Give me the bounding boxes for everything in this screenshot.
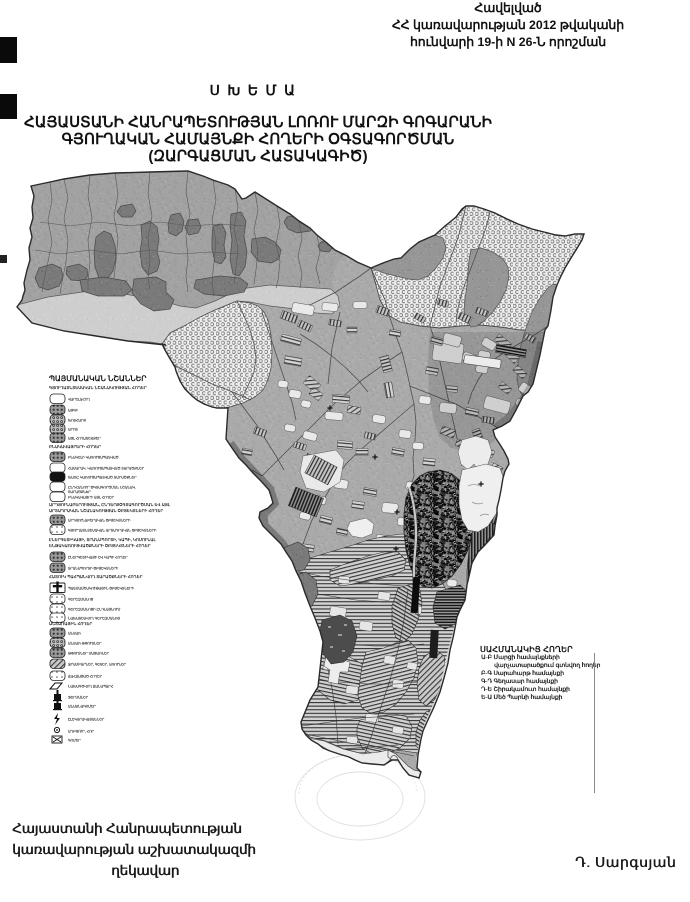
svg-text:ԳԵՐԵԶՄԱՆՈՑԻ ԸՆԴԼԱՅՆՈՒՄ: ԳԵՐԵԶՄԱՆՈՑԻ ԸՆԴԼԱՅՆՈՒՄ: [68, 608, 121, 612]
svg-text:ԷԼԵԿՏՐԱԿԱՅԱՆՆԵՐ: ԷԼԵԿՏՐԱԿԱՅԱՆՆԵՐ: [68, 718, 105, 722]
svg-text:ԱՐՈՏ: ԱՐՈՏ: [68, 428, 78, 432]
svg-text:ԷՆԵՐԳԵՏԻԿԱՅԻ ԵՎ ԿԱՊԻ ՀՈՂԵՐ: ԷՆԵՐԳԵՏԻԿԱՅԻ ԵՎ ԿԱՊԻ ՀՈՂԵՐ: [68, 556, 128, 560]
svg-text:ԱՐԴՅՈՒՆԱԲԵՐԱԿԱՆ ՕԲՅԵԿՏՆԵՐԻ: ԱՐԴՅՈՒՆԱԲԵՐԱԿԱՆ ՕԲՅԵԿՏՆԵՐԻ: [68, 519, 131, 523]
svg-text:ԱՐՏԱԴՐԱԿԱՆ ՆՇԱՆԱԿՈՒԹՅԱՆ ՕԲՅԵԿՏ: ԱՐՏԱԴՐԱԿԱՆ ՆՇԱՆԱԿՈՒԹՅԱՆ ՕԲՅԵԿՏՆԵՐԻ ՀՈՂԵՐ: [49, 508, 163, 513]
svg-text:ԲՆԱԿԱՎԱՅՐԵՐԻ ՀՈՂԵՐ: ԲՆԱԿԱՎԱՅՐԵՐԻ ՀՈՂԵՐ: [49, 444, 101, 449]
svg-text:ԵՆԹԱԿԱՌՈՒՑՎԱԾՔՆԵՐԻ ՕԲՅԵԿՏՆԵՐԻ: ԵՆԹԱԿԱՌՈՒՑՎԱԾՔՆԵՐԻ ՕԲՅԵԿՏՆԵՐԻ ՀՈՂԵՐ: [49, 543, 151, 548]
svg-text:ՏՐԱՆՍՊՈՐՏԻ ՕԲՅԵԿՏՆԵՐԻ: ՏՐԱՆՍՊՈՐՏԻ ՕԲՅԵԿՏՆԵՐԻ: [68, 567, 119, 571]
svg-text:ԱՅԳԻ: ԱՅԳԻ: [68, 409, 79, 413]
svg-text:ՀԱՏՈՒԿ ՊԱՀՊԱՆՎՈՂ ՏԱՐԱԾՔՆԵՐԻ ՀՈ: ՀԱՏՈՒԿ ՊԱՀՊԱՆՎՈՂ ՏԱՐԱԾՔՆԵՐԻ ՀՈՂԵՐ: [49, 574, 143, 579]
svg-text:ԲՆԱԿԱՎԱՅՐԻ ԱՅԼ ՀՈՂԵՐ: ԲՆԱԿԱՎԱՅՐԻ ԱՅԼ ՀՈՂԵՐ: [68, 496, 115, 500]
svg-text:ԳՅՈՒՂԱՏՆՏԵՍԱԿԱՆ ԱՐՏԱԴՐԱԿԱՆ ՕԲՅ: ԳՅՈՒՂԱՏՆՏԵՍԱԿԱՆ ԱՐՏԱԴՐԱԿԱՆ ՕԲՅԵԿՏՆԵՐԻ: [68, 529, 157, 533]
svg-text:ԹՓՈՒՏՆԵՐ ՄԱՑԱՌՆԵՐ: ԹՓՈՒՏՆԵՐ ՄԱՑԱՌՆԵՐ: [68, 652, 110, 656]
svg-text:ԳՈՄԵՐ: ԳՈՄԵՐ: [68, 739, 81, 743]
svg-text:ՀԱՍԱՐԱԿ. ԿԱՌՈՒՑԱՊԱՏՎԱԾ ՏԱՐԱԾՔՆ: ՀԱՍԱՐԱԿ. ԿԱՌՈՒՑԱՊԱՏՎԱԾ ՏԱՐԱԾՔՆԵՐ: [68, 467, 145, 471]
svg-text:ԳՅՈՒՂԱՏՆՏԵՍԱԿԱՆ ՆՇԱՆԱԿՈՒԹՅԱՆ Հ: ԳՅՈՒՂԱՏՆՏԵՍԱԿԱՆ ՆՇԱՆԱԿՈՒԹՅԱՆ ՀՈՂԵՐ: [49, 385, 147, 390]
svg-text:ԱՆԱՍՆԱԳՈՄԵՐ: ԱՆԱՍՆԱԳՈՄԵՐ: [68, 705, 96, 709]
svg-text:ԱՆՏԱՌ: ԱՆՏԱՌ: [68, 632, 81, 636]
svg-text:ՏԱՐԱԾՔՆԵՐ: ՏԱՐԱԾՔՆԵՐ: [68, 490, 91, 494]
svg-text:ԱՅԼ ՀՈՂԱՏԵՍՔԵՐ: ԱՅԼ ՀՈՂԱՏԵՍՔԵՐ: [68, 437, 101, 441]
svg-text:ԲՆԱԿԵԼԻ ԿԱՌՈՒՑԱՊԱՏՎԱԾ: ԲՆԱԿԵԼԻ ԿԱՌՈՒՑԱՊԱՏՎԱԾ: [68, 456, 119, 460]
svg-text:ՎԱՐԵԼԱՀՈՂ: ՎԱՐԵԼԱՀՈՂ: [68, 398, 90, 402]
svg-text:ՋՐԱՄԲԱՐՆԵՐ, ԳԵՏԵՐ, ԱՌՈՒՆԵՐ: ՋՐԱՄԲԱՐՆԵՐ, ԳԵՏԵՐ, ԱՌՈՒՆԵՐ: [68, 663, 127, 667]
svg-text:ՆԱԽԱԳԾՎՈՂ ՃԱՆԱՊԱՐՀ: ՆԱԽԱԳԾՎՈՂ ՃԱՆԱՊԱՐՀ: [67, 685, 114, 689]
svg-text:ՆԱԽԱՏԵՍՎՈՂ ԳԵՐԵԶՄԱՆՈՑ: ՆԱԽԱՏԵՍՎՈՂ ԳԵՐԵԶՄԱՆՈՑ: [67, 617, 120, 621]
svg-text:ԳԵՐԵԶՄԱՆՈՑ: ԳԵՐԵԶՄԱՆՈՑ: [68, 598, 94, 602]
svg-text:ՖԵՐՄԱՆԵՐ: ՖԵՐՄԱՆԵՐ: [68, 696, 89, 700]
svg-text:ԽԱՌԸ ԿԱՌՈՒՑԱՊԱՏՎԱԾ ՏԱՐԱԾՔՆԵՐ: ԽԱՌԸ ԿԱՌՈՒՑԱՊԱՏՎԱԾ ՏԱՐԱԾՔՆԵՐ: [68, 476, 137, 480]
svg-text:ԽՈՏՀԱՐՔ: ԽՈՏՀԱՐՔ: [68, 419, 86, 423]
svg-text:ՊԱՏՄԱՄՇԱԿՈՒԹԱՅԻՆ ՕԲՅԵԿՏՆԵՐԻ: ՊԱՏՄԱՄՇԱԿՈՒԹԱՅԻՆ ՕԲՅԵԿՏՆԵՐԻ: [68, 587, 135, 591]
svg-text:ԱՆՏԱՌ ԹՓՈՒՏՆԵՐ: ԱՆՏԱՌ ԹՓՈՒՏՆԵՐ: [68, 642, 102, 646]
svg-text:ՊԱՅՄԱՆԱԿԱՆ ՆՇԱՆՆԵՐ: ՊԱՅՄԱՆԱԿԱՆ ՆՇԱՆՆԵՐ: [49, 374, 147, 383]
svg-text:ԱՂԲՅՈՒՐ, ՀՈՐ: ԱՂԲՅՈՒՐ, ՀՈՐ: [68, 730, 95, 734]
svg-text:ԱՐԴՅՈՒՆԱԲԵՐՈՒԹՅԱՆ, ԸՆԴԵՐՔՕԳՏԱԳ: ԱՐԴՅՈՒՆԱԲԵՐՈՒԹՅԱՆ, ԸՆԴԵՐՔՕԳՏԱԳՈՐԾՄԱՆ ԵՎ …: [49, 502, 171, 507]
svg-text:ՃԱՀՃԱՑԱԾ ՀՈՂԵՐ: ՃԱՀՃԱՑԱԾ ՀՈՂԵՐ: [68, 675, 103, 679]
svg-text:ԸՆԴՀԱՆՈՒՐ ՕԳՏԱԳՈՐԾՄԱՆ ՆՇԱՆԱԿ.: ԸՆԴՀԱՆՈՒՐ ՕԳՏԱԳՈՐԾՄԱՆ ՆՇԱՆԱԿ.: [68, 486, 136, 490]
svg-text:ԷՆԵՐԳԵՏԻԿԱՅԻ, ՏՐԱՆՍՊՈՐՏԻ, ԿԱՊԻ: ԷՆԵՐԳԵՏԻԿԱՅԻ, ՏՐԱՆՍՊՈՐՏԻ, ԿԱՊԻ, ԿՈՄՈՒՆԱԼ: [49, 537, 156, 542]
svg-text:ԱՆՏԱՌԱՅԻՆ ՀՈՂԵՐ: ԱՆՏԱՌԱՅԻՆ ՀՈՂԵՐ: [49, 621, 92, 626]
